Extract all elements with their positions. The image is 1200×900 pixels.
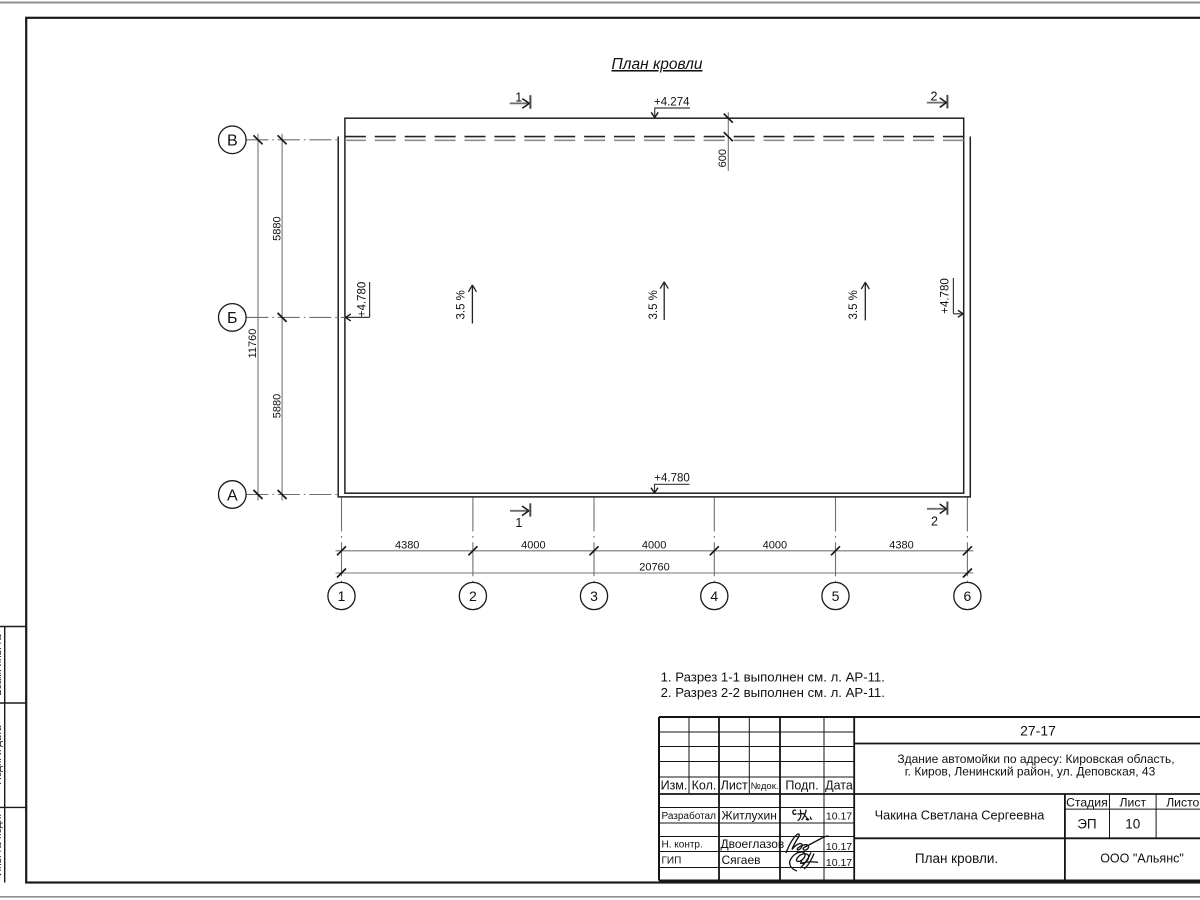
svg-text:№док.: №док.	[751, 781, 779, 792]
svg-text:4000: 4000	[763, 540, 787, 552]
svg-text:27-17: 27-17	[1020, 723, 1056, 739]
svg-text:4380: 4380	[889, 540, 913, 552]
svg-text:600: 600	[717, 149, 729, 167]
svg-text:Подп.: Подп.	[785, 779, 818, 793]
svg-text:+4.780: +4.780	[654, 473, 690, 485]
svg-text:Изм.: Изм.	[661, 779, 688, 793]
svg-text:Сягаев: Сягаев	[722, 853, 761, 867]
svg-text:Подп. и дата: Подп. и дата	[0, 725, 4, 784]
svg-text:1. Разрез 1-1 выполнен см. л.: 1. Разрез 1-1 выполнен см. л. АР-11.	[661, 670, 885, 685]
svg-text:Листов: Листов	[1166, 795, 1200, 809]
svg-text:Разработал: Разработал	[662, 810, 717, 822]
svg-text:1: 1	[515, 516, 522, 530]
svg-text:Взам. инв. №: Взам. инв. №	[0, 633, 4, 695]
svg-text:4000: 4000	[521, 540, 545, 552]
svg-text:Кол.: Кол.	[692, 779, 717, 793]
svg-text:Инв. № подл.: Инв. № подл.	[0, 814, 4, 876]
svg-text:Лист: Лист	[721, 779, 748, 793]
svg-text:ГИП: ГИП	[662, 856, 682, 867]
svg-text:Житлухин: Житлухин	[722, 809, 777, 823]
svg-text:Б: Б	[227, 310, 238, 327]
svg-text:План кровли: План кровли	[612, 56, 703, 73]
svg-text:5880: 5880	[272, 216, 284, 240]
svg-text:Дата: Дата	[825, 779, 853, 793]
svg-text:А: А	[227, 487, 238, 504]
svg-text:В: В	[227, 133, 238, 150]
svg-text:10.17: 10.17	[826, 857, 852, 869]
svg-text:Чакина Светлана Сергеевна: Чакина Светлана Сергеевна	[875, 808, 1046, 823]
svg-text:+4.780: +4.780	[357, 282, 369, 318]
svg-text:2. Разрез 2-2 выполнен см. л.: 2. Разрез 2-2 выполнен см. л. АР-11.	[661, 685, 885, 700]
svg-text:2: 2	[931, 515, 938, 529]
svg-text:План кровли.: План кровли.	[915, 851, 998, 866]
svg-text:20760: 20760	[639, 562, 670, 574]
svg-text:5880: 5880	[272, 394, 284, 418]
svg-text:+4.780: +4.780	[939, 278, 951, 314]
svg-text:г. Киров, Ленинский район, ул.: г. Киров, Ленинский район, ул. Деповская…	[905, 765, 1156, 779]
svg-text:3: 3	[590, 588, 598, 604]
svg-text:2: 2	[931, 90, 938, 104]
svg-text:5: 5	[832, 588, 840, 604]
svg-text:ООО "Альянс": ООО "Альянс"	[1100, 852, 1184, 866]
svg-text:4000: 4000	[642, 540, 666, 552]
svg-text:6: 6	[964, 588, 972, 604]
svg-text:10: 10	[1125, 817, 1140, 832]
svg-text:ЭП: ЭП	[1077, 817, 1096, 832]
svg-text:3.5 %: 3.5 %	[648, 290, 660, 319]
svg-text:Двоеглазов: Двоеглазов	[721, 837, 785, 851]
svg-text:+4.274: +4.274	[654, 97, 690, 109]
svg-text:10.17: 10.17	[826, 811, 852, 823]
svg-text:3.5 %: 3.5 %	[848, 290, 860, 319]
svg-text:1: 1	[338, 588, 346, 604]
svg-text:Лист: Лист	[1120, 795, 1147, 809]
svg-text:Стадия: Стадия	[1066, 795, 1108, 809]
svg-text:3.5 %: 3.5 %	[456, 290, 468, 319]
svg-text:Н. контр.: Н. контр.	[662, 840, 703, 851]
svg-text:2: 2	[469, 588, 477, 604]
svg-text:1: 1	[515, 90, 522, 104]
svg-text:4: 4	[710, 588, 718, 604]
svg-text:11760: 11760	[247, 329, 259, 359]
svg-text:10.17: 10.17	[826, 841, 852, 853]
svg-text:4380: 4380	[395, 540, 419, 552]
